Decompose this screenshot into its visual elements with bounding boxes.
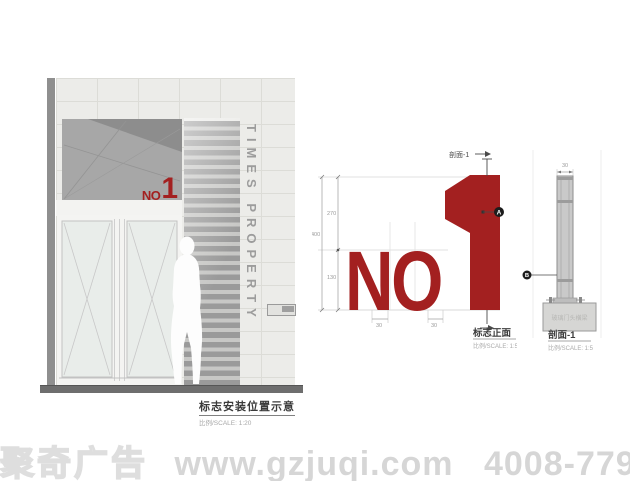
elevation-sign-no1: NO 1: [142, 178, 178, 201]
watermark-brand: 聚奇广告: [0, 445, 148, 481]
elevation-caption-block: 标志安装位置示意 比例/SCALE: 1:20: [199, 398, 295, 427]
section-cut-label: 剖面-1: [449, 150, 469, 159]
section-arrow-top-icon: [485, 151, 491, 157]
ground-line: [40, 385, 303, 393]
marker-a-label: A: [497, 209, 502, 216]
header-beam: [56, 200, 182, 216]
transom-shadow-triangle: [88, 119, 182, 152]
section-caption: 剖面-1: [548, 329, 576, 341]
wall-column-bar: [47, 78, 55, 388]
front-sign-digit-one: [445, 175, 500, 310]
base-beam-label: 玻璃门头横梁: [551, 314, 587, 322]
wall-fixture-vent: [282, 306, 294, 312]
human-silhouette: [162, 236, 214, 386]
sign-front-view: 400 270 130 30 30 NO 剖面-1 A 标志正面 比例/SCA: [312, 145, 517, 360]
watermark-phone: 4008-779-020: [484, 445, 630, 481]
louver-vertical-lettering: TIMES PROPERTY: [240, 124, 259, 386]
front-scale-label: 比例/SCALE: 1:5: [473, 342, 517, 350]
section-1-view: 30 B 玻璃门头横梁 剖面-1 比例/SCALE: 1:5: [520, 148, 620, 360]
elevation-scale-label: 比例/SCALE: 1:20: [199, 417, 295, 427]
marker-b-label: B: [525, 273, 529, 279]
sign-post-profile: [557, 176, 573, 303]
watermark-website: www.gzjuqi.com: [174, 445, 453, 481]
post-base-flange: [553, 298, 577, 303]
transom-window: NO 1: [62, 119, 182, 202]
dim-label-overall: 400: [312, 232, 320, 238]
dim-label-lower: 130: [327, 275, 336, 281]
sign-text-one: 1: [161, 178, 178, 201]
front-sign-text-no: NO: [345, 235, 441, 329]
wall-fixture: [267, 304, 296, 316]
section-scale-label: 比例/SCALE: 1:5: [548, 344, 594, 352]
dim-label-upper: 270: [327, 211, 336, 217]
elevation-caption: 标志安装位置示意: [199, 398, 295, 416]
dim-label-thickness: 30: [562, 163, 568, 169]
signage-design-sheet: NO 1 TIMES PROPERTY 标志安装位置示意: [0, 0, 630, 481]
watermark: 聚奇广告 www.gzjuqi.com 4008-779-020: [0, 436, 630, 481]
front-caption: 标志正面: [472, 327, 512, 339]
